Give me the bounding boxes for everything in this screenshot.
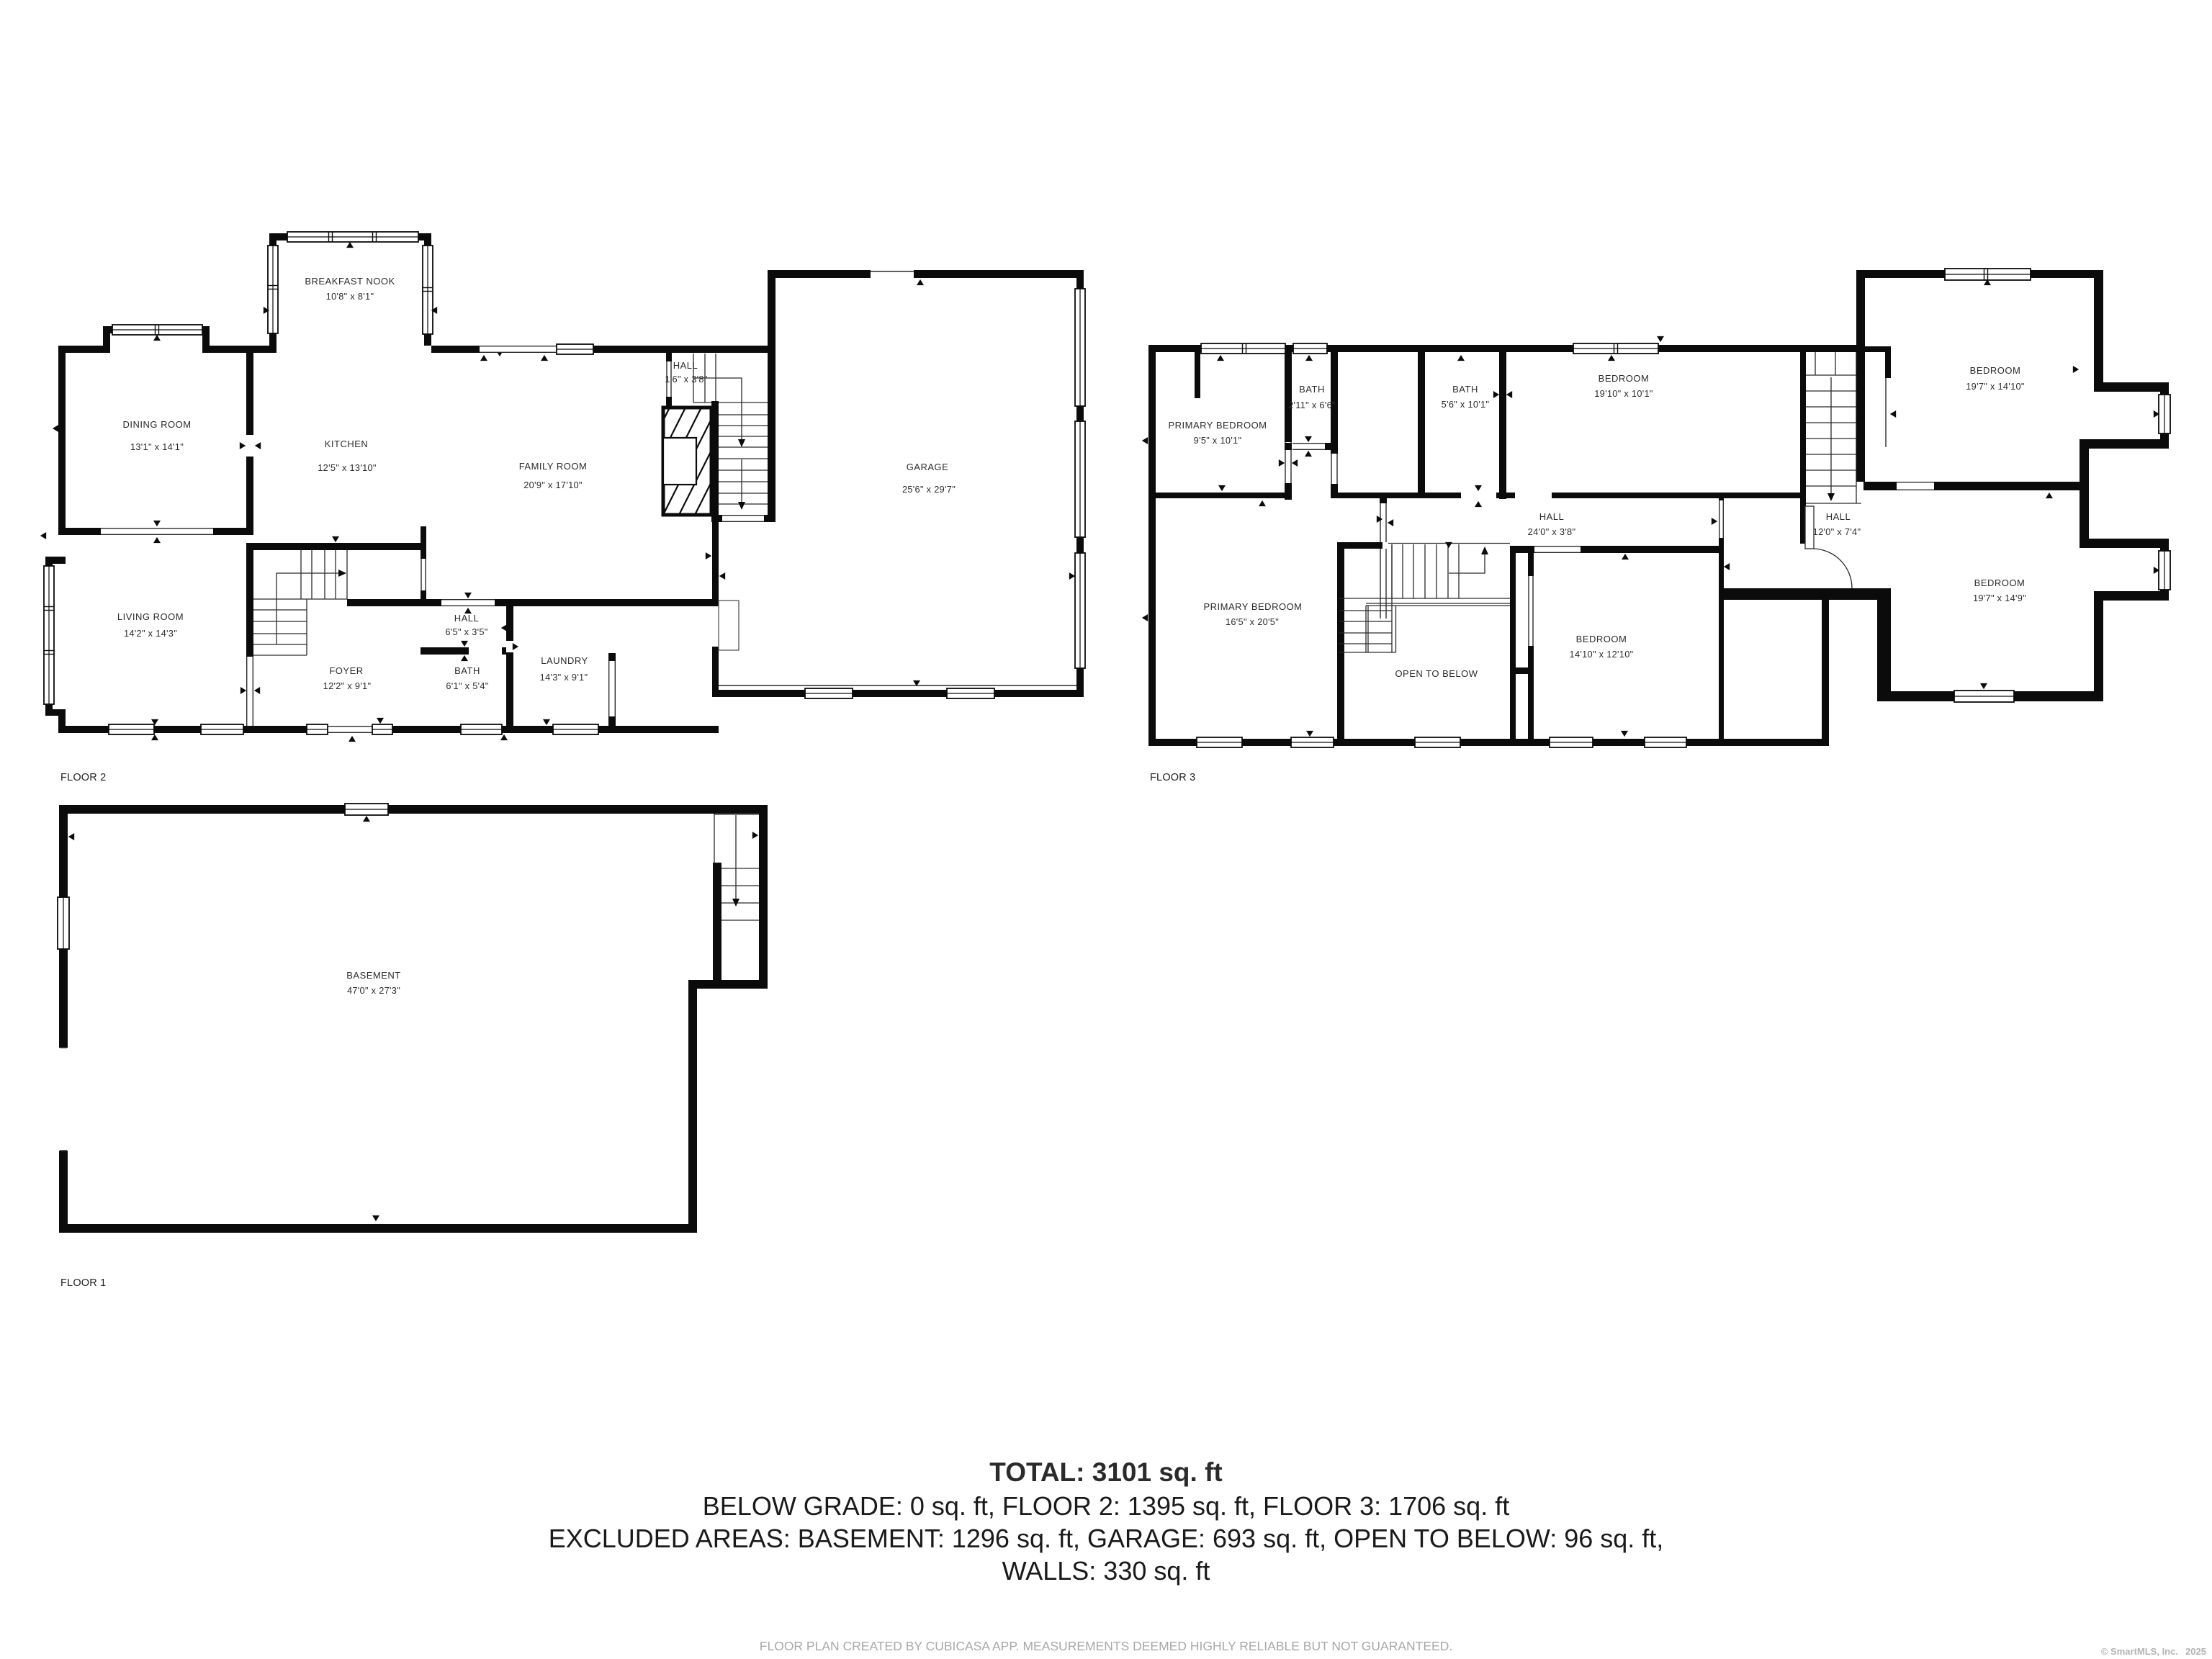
svg-text:HALL: HALL (454, 613, 480, 624)
svg-text:BEDROOM: BEDROOM (1974, 577, 2026, 588)
svg-text:19'7" x 14'10": 19'7" x 14'10" (1966, 381, 2025, 392)
svg-text:24'0" x 3'8": 24'0" x 3'8" (1528, 526, 1576, 537)
svg-text:WALLS: 330 sq. ft: WALLS: 330 sq. ft (1002, 1556, 1210, 1586)
svg-text:BEDROOM: BEDROOM (1970, 365, 2021, 376)
svg-text:OPEN TO BELOW: OPEN TO BELOW (1395, 668, 1478, 679)
svg-text:6'5" x 3'5": 6'5" x 3'5" (445, 626, 487, 637)
svg-text:14'2" x 14'3": 14'2" x 14'3" (124, 628, 177, 639)
svg-text:BATH: BATH (1452, 384, 1478, 395)
svg-text:BEDROOM: BEDROOM (1576, 634, 1627, 644)
svg-text:FLOOR PLAN CREATED BY CUBICASA: FLOOR PLAN CREATED BY CUBICASA APP. MEAS… (760, 1639, 1452, 1653)
svg-text:6'1" x 5'4": 6'1" x 5'4" (446, 680, 488, 691)
svg-text:25'6" x 29'7": 25'6" x 29'7" (902, 484, 956, 495)
svg-text:DINING ROOM: DINING ROOM (122, 419, 191, 430)
svg-text:1'6" x 3'8": 1'6" x 3'8" (665, 374, 707, 385)
svg-text:12'0" x 7'4": 12'0" x 7'4" (1813, 526, 1861, 537)
svg-text:BELOW GRADE: 0 sq. ft, FLOOR 2: BELOW GRADE: 0 sq. ft, FLOOR 2: 1395 sq.… (703, 1491, 1509, 1521)
svg-text:FOYER: FOYER (329, 665, 363, 676)
svg-text:HALL: HALL (1826, 511, 1851, 522)
svg-text:16'5" x 20'5": 16'5" x 20'5" (1226, 616, 1279, 627)
svg-text:9'5" x 10'1": 9'5" x 10'1" (1194, 435, 1242, 446)
svg-text:BATH: BATH (1299, 384, 1325, 395)
svg-text:47'0" x 27'3": 47'0" x 27'3" (347, 985, 400, 996)
svg-text:GARAGE: GARAGE (907, 462, 949, 472)
svg-text:BEDROOM: BEDROOM (1599, 373, 1650, 384)
svg-text:FLOOR 3: FLOOR 3 (1150, 772, 1195, 783)
svg-text:FLOOR 2: FLOOR 2 (60, 772, 106, 783)
svg-text:FAMILY ROOM: FAMILY ROOM (519, 461, 588, 472)
svg-text:FLOOR 1: FLOOR 1 (60, 1277, 106, 1289)
svg-text:BASEMENT: BASEMENT (346, 970, 401, 981)
svg-text:19'10" x 10'1": 19'10" x 10'1" (1594, 388, 1653, 399)
svg-text:13'1" x 14'1": 13'1" x 14'1" (130, 441, 184, 452)
svg-text:12'5" x 13'10": 12'5" x 13'10" (318, 462, 377, 473)
svg-text:14'10" x 12'10": 14'10" x 12'10" (1570, 649, 1634, 660)
svg-text:PRIMARY BEDROOM: PRIMARY BEDROOM (1203, 601, 1302, 612)
svg-text:BREAKFAST NOOK: BREAKFAST NOOK (305, 276, 395, 287)
svg-text:HALL: HALL (673, 360, 698, 371)
svg-text:BATH: BATH (454, 665, 480, 676)
svg-text:PRIMARY BEDROOM: PRIMARY BEDROOM (1168, 420, 1267, 431)
svg-text:LIVING ROOM: LIVING ROOM (117, 611, 184, 622)
svg-text:KITCHEN: KITCHEN (325, 439, 369, 449)
svg-text:14'3" x 9'1": 14'3" x 9'1" (540, 672, 588, 683)
svg-text:HALL: HALL (1539, 511, 1565, 522)
svg-text:5'6" x 10'1": 5'6" x 10'1" (1442, 399, 1490, 410)
svg-text:20'9" x 17'10": 20'9" x 17'10" (523, 480, 583, 490)
svg-text:19'7" x 14'9": 19'7" x 14'9" (1973, 593, 2026, 603)
svg-text:EXCLUDED AREAS: BASEMENT: 1296: EXCLUDED AREAS: BASEMENT: 1296 sq. ft, G… (549, 1524, 1664, 1553)
svg-text:© SmartMLS, Inc. 2025: © SmartMLS, Inc. 2025 (2101, 1646, 2206, 1657)
svg-text:2'11" x 6'6": 2'11" x 6'6" (1288, 400, 1336, 410)
svg-text:10'8" x 8'1": 10'8" x 8'1" (326, 291, 374, 302)
svg-text:12'2" x 9'1": 12'2" x 9'1" (323, 680, 372, 691)
svg-text:LAUNDRY: LAUNDRY (541, 655, 588, 666)
svg-text:TOTAL: 3101 sq. ft: TOTAL: 3101 sq. ft (989, 1457, 1222, 1487)
